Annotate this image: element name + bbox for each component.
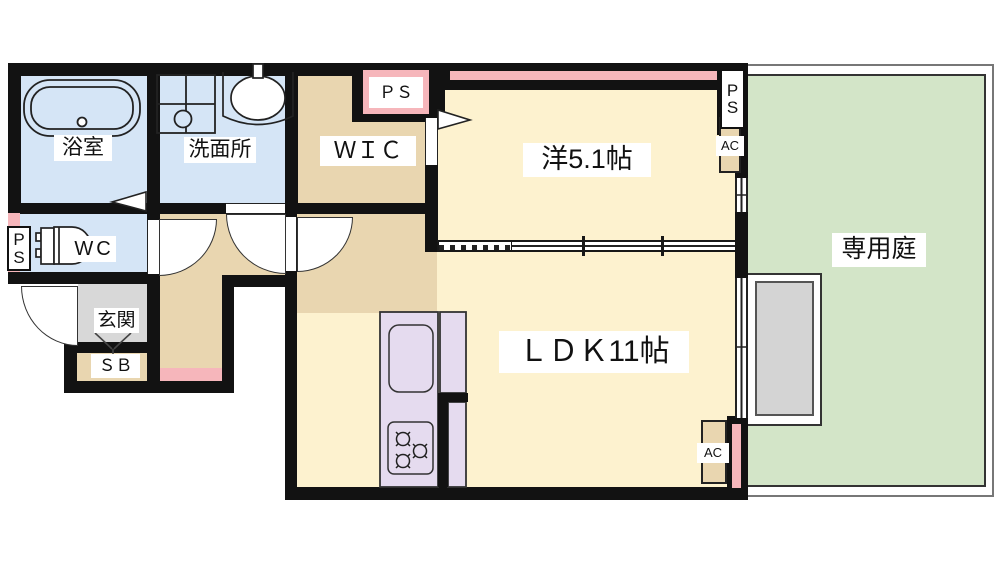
ac-label-ldk: AC	[697, 443, 729, 463]
ac-label-bedroom: AC	[716, 136, 744, 156]
room-label-washroom: 洗面所	[184, 137, 256, 163]
room-label-entrance: 玄関	[94, 308, 139, 333]
room-label-ldk: ＬＤＫ11帖	[499, 331, 689, 373]
room-label-western-room: 洋5.1帖	[523, 143, 651, 177]
kitchen-counter-icon	[380, 312, 468, 487]
ps-label-wic: ＰＳ	[369, 77, 423, 108]
bathtub-icon	[24, 80, 140, 136]
room-label-wc: WC	[72, 236, 116, 262]
bathroom-door-icon	[112, 192, 146, 211]
floor-plan: 浴室 洗面所 WC ＷＩＣ 洋5.1帖 ＬＤＫ11帖 玄関 ＳＢ 専用庭 P S…	[0, 0, 1000, 562]
bedroom-door-icon	[438, 110, 470, 129]
room-label-bathroom: 浴室	[54, 135, 112, 161]
sink-icon	[223, 64, 293, 125]
ps-label-bedroom: P S	[720, 69, 745, 129]
room-label-garden: 専用庭	[832, 233, 926, 267]
ps-label-left: P S	[7, 226, 31, 271]
fixtures-layer	[0, 0, 1000, 562]
room-label-shoebox: ＳＢ	[91, 354, 140, 378]
washing-machine-pan-icon	[157, 75, 215, 133]
room-label-wic: ＷＩＣ	[320, 136, 416, 166]
